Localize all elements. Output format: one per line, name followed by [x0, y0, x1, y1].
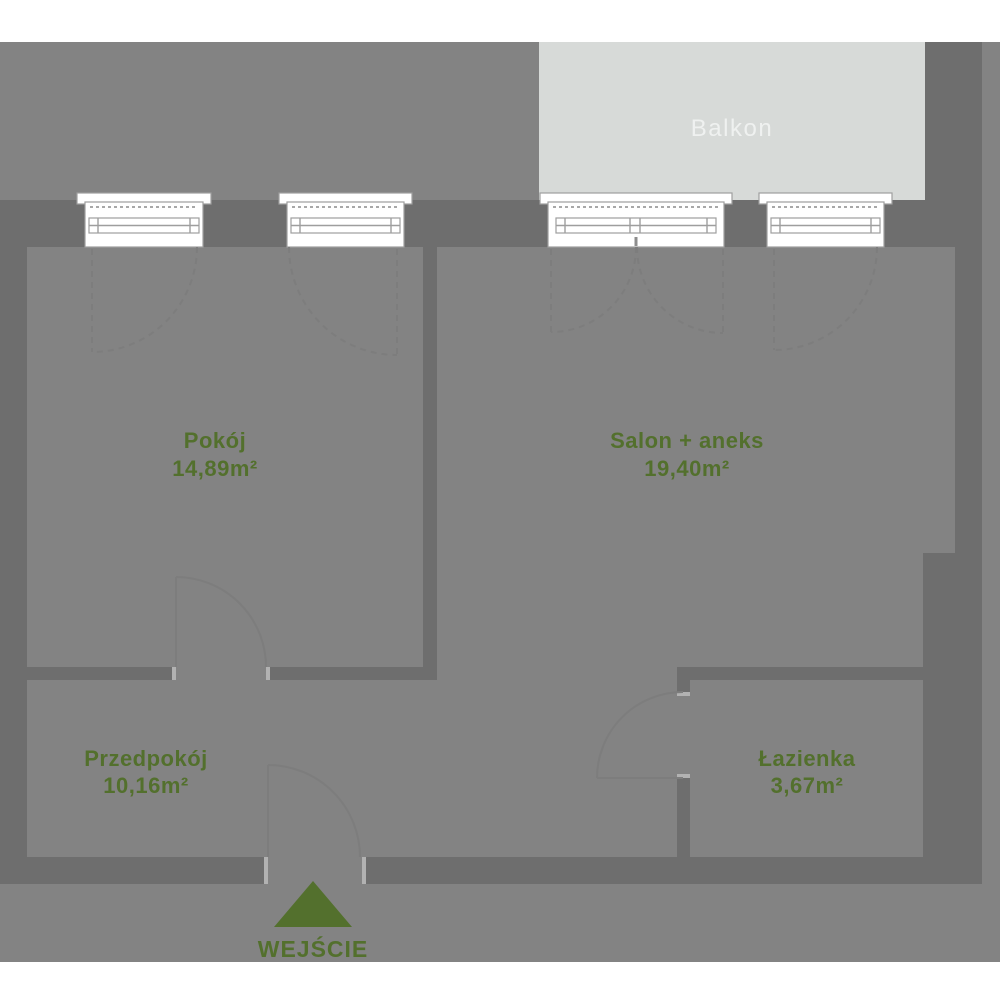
wall-bottom-right [366, 857, 982, 884]
wall-lazienka-top [677, 667, 923, 680]
wall-bottom-left [0, 857, 264, 884]
jamb-entrance-right [362, 857, 366, 884]
wall-left [0, 200, 27, 884]
room-label-przedpokoj: Przedpokój [84, 746, 208, 771]
entrance-label: WEJŚCIE [258, 935, 369, 962]
wall-pokoj-przedpokoj-left [27, 667, 172, 680]
room-area-pokoj: 14,89m² [172, 456, 257, 481]
floor-plan: Balkon [0, 0, 1000, 1000]
wall-pokoj-salon [423, 247, 437, 680]
wall-right-upper [955, 247, 982, 553]
jamb-entrance-left [264, 857, 268, 884]
room-label-pokoj: Pokój [184, 428, 246, 453]
wall-lazienka-left-lower [677, 778, 690, 857]
wall-lazienka-left-upper [677, 680, 690, 692]
jamb-pokoj-door-right [266, 667, 270, 680]
room-area-lazienka: 3,67m² [771, 773, 844, 798]
wall-top-right-block [925, 42, 982, 200]
jamb-pokoj-door-left [172, 667, 176, 680]
room-area-przedpokoj: 10,16m² [103, 773, 188, 798]
floor-plan-svg: Balkon [0, 0, 1000, 1000]
wall-right-lower [923, 553, 982, 884]
room-area-salon: 19,40m² [644, 456, 729, 481]
balcony-label: Balkon [691, 115, 773, 142]
room-label-lazienka: Łazienka [759, 746, 856, 771]
wall-pokoj-przedpokoj-right [270, 667, 437, 680]
room-label-salon: Salon + aneks [610, 428, 764, 453]
